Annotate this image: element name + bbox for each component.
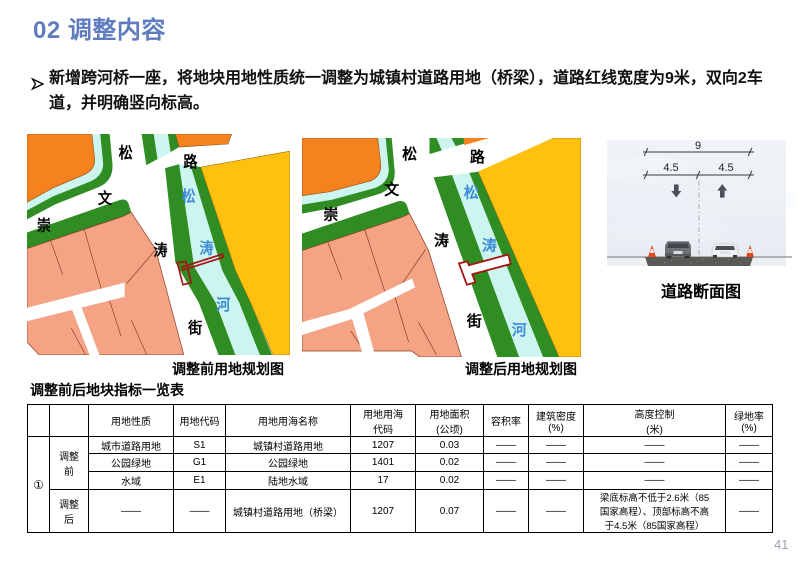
- svg-text:涛: 涛: [482, 236, 497, 254]
- svg-text:街: 街: [466, 312, 482, 330]
- svg-text:松: 松: [464, 184, 479, 202]
- svg-text:街: 街: [187, 318, 202, 337]
- svg-text:松: 松: [119, 144, 133, 163]
- svg-text:涛: 涛: [199, 239, 213, 258]
- svg-text:松: 松: [402, 145, 417, 163]
- svg-text:9: 9: [695, 140, 701, 152]
- svg-text:涛: 涛: [153, 241, 167, 260]
- svg-text:路: 路: [470, 148, 486, 166]
- svg-text:涛: 涛: [434, 232, 449, 250]
- svg-text:河: 河: [512, 321, 527, 339]
- svg-text:路: 路: [183, 153, 197, 172]
- svg-text:松: 松: [182, 187, 196, 206]
- svg-text:河: 河: [216, 295, 230, 314]
- svg-text:4.5: 4.5: [663, 162, 678, 174]
- svg-text:崇: 崇: [323, 206, 338, 224]
- svg-text:4.5: 4.5: [718, 162, 733, 174]
- svg-text:文: 文: [384, 181, 399, 199]
- svg-text:崇: 崇: [37, 216, 51, 235]
- svg-text:文: 文: [98, 189, 112, 208]
